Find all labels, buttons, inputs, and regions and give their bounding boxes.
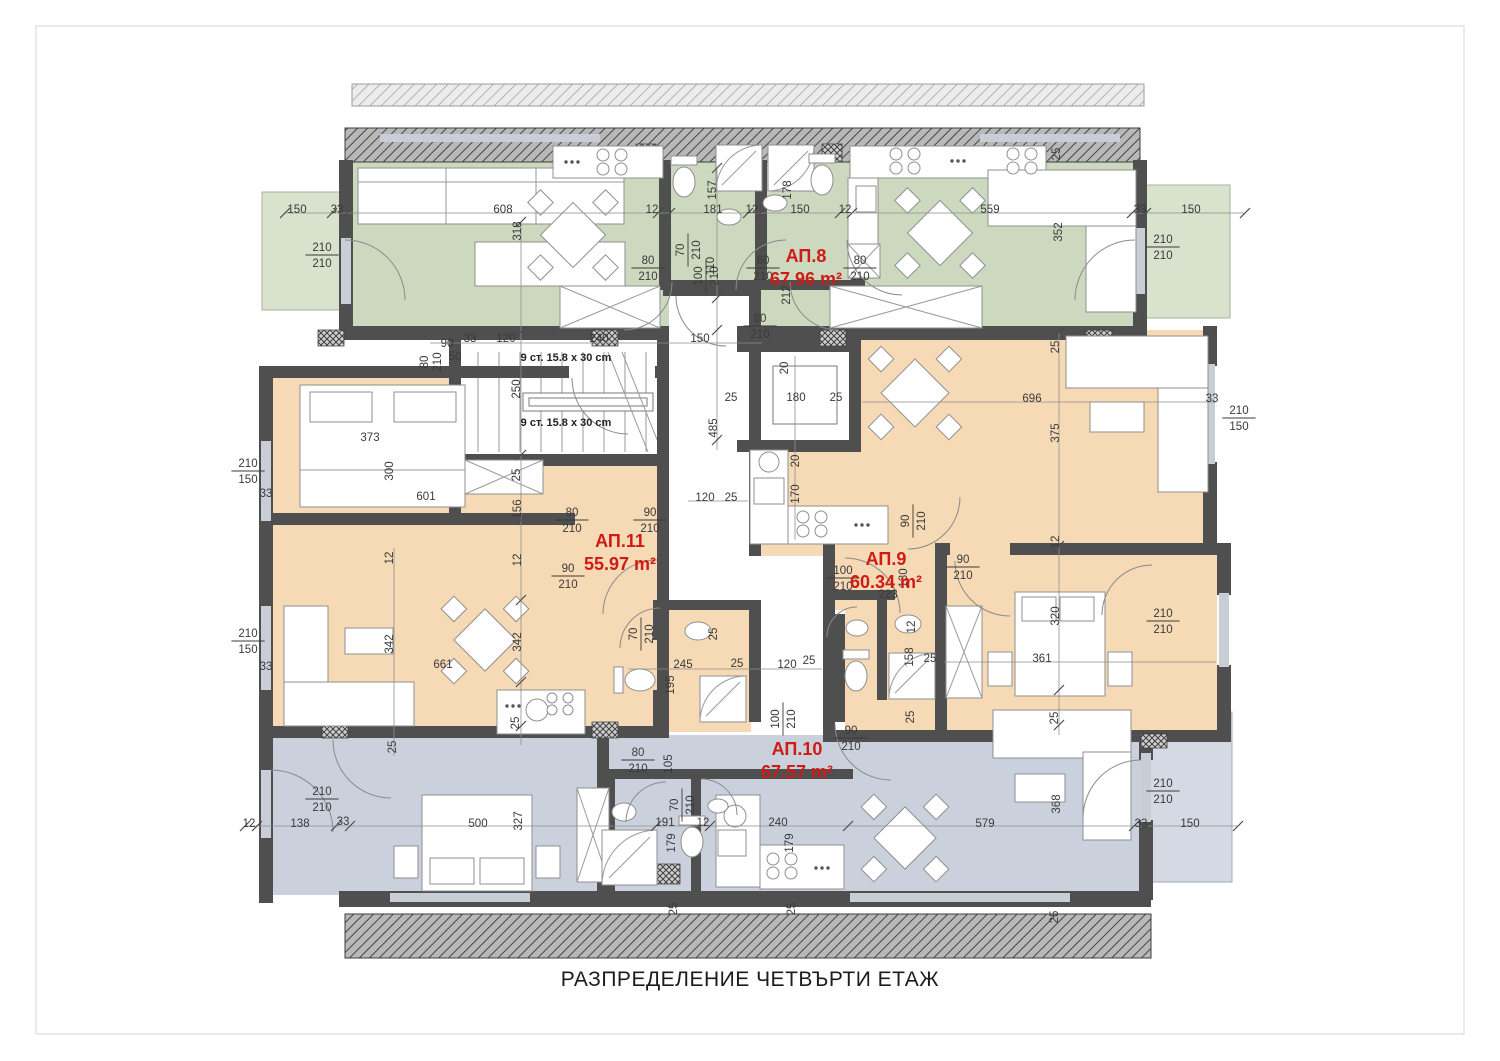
dimension-label: 120 xyxy=(777,659,796,671)
drawing-title: РАЗПРЕДЕЛЕНИЕ ЧЕТВЪРТИ ЕТАЖ xyxy=(0,968,1500,992)
stair-note: 9 ст. 15.8 x 30 cm xyxy=(521,352,612,364)
svg-text:70: 70 xyxy=(628,628,640,641)
dimension-label: 25 xyxy=(510,717,522,730)
dimension-label: 485 xyxy=(708,418,720,437)
dimension-label: 245 xyxy=(673,659,692,671)
roof-band-top xyxy=(352,84,1144,106)
svg-text:210: 210 xyxy=(638,271,657,283)
svg-text:80: 80 xyxy=(757,255,770,267)
dimension-label: 342 xyxy=(512,632,524,651)
svg-text:210: 210 xyxy=(312,802,331,814)
dimension-label: 559 xyxy=(980,204,999,216)
dimension-label: 210 xyxy=(432,352,444,371)
dimension-label: 25 xyxy=(511,469,523,482)
nightstand xyxy=(536,846,560,878)
corner-sofa xyxy=(988,170,1136,226)
dimension-label: 320 xyxy=(1050,606,1062,625)
stair-note: 9 ст. 15.8 x 30 cm xyxy=(521,417,612,429)
dimension-label: 25 xyxy=(905,711,917,724)
corner-sofa xyxy=(993,710,1131,758)
dimension-label: 375 xyxy=(1050,423,1062,442)
svg-text:90: 90 xyxy=(644,507,657,519)
svg-text:100: 100 xyxy=(770,709,782,728)
dimension-label: 327 xyxy=(513,811,525,830)
apartment-area-label: 67.96 m² xyxy=(770,269,842,289)
svg-text:210: 210 xyxy=(786,709,798,728)
dimension-label: 12 xyxy=(746,204,759,216)
dimension-label: 33 xyxy=(1135,818,1148,830)
dimension-label: 12 xyxy=(1050,536,1062,549)
dimension-label: 368 xyxy=(1051,794,1063,813)
svg-text:90: 90 xyxy=(957,554,970,566)
svg-text:70: 70 xyxy=(669,799,681,812)
dimension-label: 361 xyxy=(1032,653,1051,665)
svg-text:210: 210 xyxy=(841,741,860,753)
apartment-area-label: 55.97 m² xyxy=(584,554,656,574)
dimension-label: 150 xyxy=(1180,818,1199,830)
dimension-label: 25 xyxy=(708,628,720,641)
svg-text:210: 210 xyxy=(1153,794,1172,806)
svg-text:210: 210 xyxy=(562,523,581,535)
apartment-label: АП.10 xyxy=(772,739,823,759)
svg-text:210: 210 xyxy=(312,242,331,254)
dimension-label: 178 xyxy=(782,180,794,199)
svg-text:210: 210 xyxy=(685,795,697,814)
svg-text:210: 210 xyxy=(916,511,928,530)
dimension-label: 120 xyxy=(496,333,515,345)
dimension-label: 90 xyxy=(441,338,454,350)
svg-text:210: 210 xyxy=(750,329,769,341)
svg-text:80: 80 xyxy=(632,747,645,759)
exterior-wall-bottom xyxy=(345,914,1151,958)
dimension-label: 191 xyxy=(655,817,674,829)
dimension-label: 240 xyxy=(589,333,608,345)
svg-text:90: 90 xyxy=(900,515,912,528)
dimension-label: 25 xyxy=(1049,911,1061,924)
dimension-label: 12 xyxy=(512,554,524,567)
nightstand xyxy=(1108,652,1132,686)
dimension-label: 12 xyxy=(697,817,710,829)
dimension-label: 25 xyxy=(1050,341,1062,354)
svg-text:100: 100 xyxy=(693,266,705,285)
svg-text:210: 210 xyxy=(558,579,577,591)
dimension-label: 661 xyxy=(433,659,452,671)
dimension-label: 20 xyxy=(790,455,802,468)
stair-rail xyxy=(523,393,653,411)
dimension-label: 25 xyxy=(1051,148,1063,161)
svg-text:150: 150 xyxy=(238,474,257,486)
svg-text:210: 210 xyxy=(953,570,972,582)
svg-text:150: 150 xyxy=(1229,421,1248,433)
dimension-label: 25 xyxy=(924,653,937,665)
kitchen-sink xyxy=(526,699,548,721)
svg-text:210: 210 xyxy=(1153,608,1172,620)
svg-text:80: 80 xyxy=(642,255,655,267)
dimension-label: 181 xyxy=(703,204,722,216)
floor-plan-sheet: 1503360812181121501255933150318157178352… xyxy=(0,0,1500,1061)
dimension-label: 33 xyxy=(260,661,273,673)
dimension-label: 170 xyxy=(790,484,802,503)
dimension-label: 696 xyxy=(1022,393,1041,405)
dimension-label: 25 xyxy=(387,741,399,754)
dimension-label: 158 xyxy=(904,647,916,666)
dimension-label: 150 xyxy=(790,204,809,216)
dimension-label: 12 xyxy=(906,621,918,634)
dimension-label: 25 xyxy=(1049,712,1061,725)
dimension-label: 33 xyxy=(331,204,344,216)
nightstand xyxy=(394,846,418,878)
dimension-label: 33 xyxy=(1134,204,1147,216)
dimension-label: 179 xyxy=(784,833,796,852)
dimension-label: 240 xyxy=(768,817,787,829)
dimension-label: 500 xyxy=(468,818,487,830)
svg-text:210: 210 xyxy=(691,240,703,259)
dimension-label: 12 xyxy=(243,818,256,830)
dimension-label: 105 xyxy=(663,754,675,773)
dimension-label: 25 xyxy=(786,903,798,916)
dimension-label: 150 xyxy=(690,333,709,345)
svg-text:210: 210 xyxy=(1153,624,1172,636)
dimension-label: 25 xyxy=(803,655,816,667)
apartment-label: АП.11 xyxy=(595,531,645,551)
dimension-label: 373 xyxy=(360,432,379,444)
dimension-label: 33 xyxy=(337,816,350,828)
svg-text:90: 90 xyxy=(562,563,575,575)
dimension-label: 180 xyxy=(786,392,805,404)
dimension-label: 138 xyxy=(290,818,309,830)
svg-text:80: 80 xyxy=(854,255,867,267)
dimension-label: 579 xyxy=(975,818,994,830)
dimension-label: 33 xyxy=(260,488,273,500)
dimension-label: 195 xyxy=(665,675,677,694)
svg-text:80: 80 xyxy=(754,313,767,325)
svg-text:210: 210 xyxy=(1229,405,1248,417)
dimension-label: 150 xyxy=(1181,204,1200,216)
apartment-area-label: 67.57 m² xyxy=(761,762,833,782)
apartment-label: АП.9 xyxy=(866,549,907,569)
svg-text:210: 210 xyxy=(312,258,331,270)
dimension-label: 120 xyxy=(695,492,714,504)
dimension-label: 80 xyxy=(419,356,431,369)
svg-text:210: 210 xyxy=(628,763,647,775)
dimension-label: 50 xyxy=(449,351,462,363)
dimension-label: 601 xyxy=(416,491,435,503)
dimension-label: 156 xyxy=(512,499,524,518)
coffee-table xyxy=(1090,402,1144,432)
apartment-area-label: 60.34 m² xyxy=(850,572,922,592)
svg-text:210: 210 xyxy=(1153,778,1172,790)
floor-plan-drawing: 1503360812181121501255933150318157178352… xyxy=(0,0,1500,1061)
dimension-label: 33 xyxy=(464,333,477,345)
svg-text:80: 80 xyxy=(566,507,579,519)
svg-text:210: 210 xyxy=(1153,234,1172,246)
apartment-label: АП.8 xyxy=(786,246,827,266)
dimension-label: 25 xyxy=(725,492,738,504)
dimension-label: 342 xyxy=(384,634,396,653)
kitchen-sink xyxy=(856,186,876,212)
dimension-label: 25 xyxy=(731,658,744,670)
nightstand xyxy=(988,652,1012,686)
dimension-label: 300 xyxy=(384,461,396,480)
svg-text:210: 210 xyxy=(850,271,869,283)
svg-text:70: 70 xyxy=(675,244,687,257)
dimension-label: 179 xyxy=(666,833,678,852)
svg-text:210: 210 xyxy=(644,624,656,643)
dimension-label: 608 xyxy=(493,204,512,216)
dimension-label: 150 xyxy=(287,204,306,216)
dimension-label: 12 xyxy=(839,204,852,216)
kitchen-sink xyxy=(759,452,779,472)
dimension-label: 250 xyxy=(511,379,523,398)
svg-text:150: 150 xyxy=(238,644,257,656)
svg-text:210: 210 xyxy=(238,458,257,470)
dimension-label: 25 xyxy=(725,392,738,404)
dimension-label: 25 xyxy=(830,392,843,404)
dimension-label: 12 xyxy=(384,552,396,565)
svg-text:90: 90 xyxy=(845,725,858,737)
dimension-label: 352 xyxy=(1053,222,1065,241)
dimension-label: 12 xyxy=(646,204,659,216)
dimension-label: 33 xyxy=(1206,393,1219,405)
dimension-label: 25 xyxy=(668,903,680,916)
kitchen-counter xyxy=(553,146,663,178)
dimension-label: 20 xyxy=(779,362,791,375)
svg-text:210: 210 xyxy=(312,786,331,798)
dimension-label: 318 xyxy=(512,221,524,240)
svg-text:210: 210 xyxy=(238,628,257,640)
svg-text:210: 210 xyxy=(1153,250,1172,262)
svg-text:210: 210 xyxy=(709,266,721,285)
dimension-label: 157 xyxy=(707,180,719,199)
corner-sofa xyxy=(1066,336,1208,388)
